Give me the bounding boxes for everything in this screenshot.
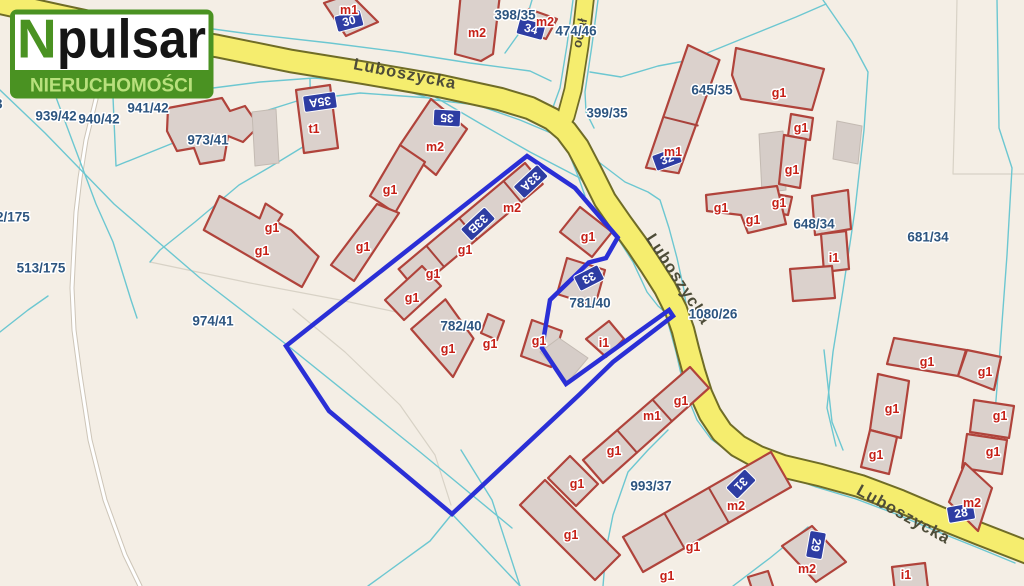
svg-text:g1: g1 <box>405 291 420 305</box>
svg-text:474/46: 474/46 <box>555 24 597 39</box>
svg-text:g1: g1 <box>356 240 371 254</box>
svg-text:g1: g1 <box>869 448 884 462</box>
svg-text:m2: m2 <box>963 496 981 510</box>
svg-text:35: 35 <box>440 111 454 126</box>
svg-text:m2: m2 <box>727 499 745 513</box>
svg-text:g1: g1 <box>564 528 579 542</box>
svg-text:g1: g1 <box>532 334 547 348</box>
svg-text:681/34: 681/34 <box>907 230 949 245</box>
svg-text:m2: m2 <box>536 15 554 29</box>
svg-text:g1: g1 <box>441 342 456 356</box>
svg-text:NIERUCHOMOŚCI: NIERUCHOMOŚCI <box>30 73 193 97</box>
svg-text:g1: g1 <box>660 569 675 583</box>
svg-text:g1: g1 <box>785 163 800 177</box>
svg-text:N: N <box>17 8 57 70</box>
svg-text:g1: g1 <box>426 267 441 281</box>
svg-text:m1: m1 <box>664 145 682 159</box>
svg-text:g1: g1 <box>607 444 622 458</box>
svg-text:i1: i1 <box>599 336 609 350</box>
svg-text:m2: m2 <box>426 140 444 154</box>
svg-text:g1: g1 <box>686 540 701 554</box>
svg-text:941/42: 941/42 <box>127 101 168 116</box>
svg-text:g1: g1 <box>746 213 761 227</box>
svg-text:993/37: 993/37 <box>630 479 671 494</box>
svg-text:782/40: 782/40 <box>440 319 481 334</box>
svg-text:g1: g1 <box>570 477 585 491</box>
svg-text:g1: g1 <box>993 409 1008 423</box>
svg-text:781/40: 781/40 <box>569 296 610 311</box>
svg-text:m2: m2 <box>468 26 486 40</box>
svg-text:g1: g1 <box>255 244 270 258</box>
svg-text:g1: g1 <box>772 86 787 100</box>
svg-text:g1: g1 <box>920 355 935 369</box>
svg-text:398/35: 398/35 <box>494 8 536 23</box>
svg-text:m2: m2 <box>798 562 816 576</box>
svg-text:m1: m1 <box>643 409 661 423</box>
svg-text:t1: t1 <box>308 122 319 136</box>
svg-text:974/41: 974/41 <box>192 314 234 329</box>
svg-text:g1: g1 <box>383 183 398 197</box>
svg-text:g1: g1 <box>483 337 498 351</box>
svg-text:940/42: 940/42 <box>78 112 119 127</box>
svg-text:i1: i1 <box>901 568 911 582</box>
svg-text:g1: g1 <box>978 365 993 379</box>
svg-text:g1: g1 <box>772 196 787 210</box>
svg-text:399/35: 399/35 <box>586 106 628 121</box>
svg-text:g1: g1 <box>581 230 596 244</box>
svg-text:g1: g1 <box>885 402 900 416</box>
svg-text:m2: m2 <box>503 201 521 215</box>
svg-text:i1: i1 <box>829 251 839 265</box>
svg-text:pulsar: pulsar <box>57 8 206 70</box>
svg-text:1080/26: 1080/26 <box>689 307 738 322</box>
svg-text:g1: g1 <box>265 221 280 235</box>
svg-text:648/34: 648/34 <box>793 217 835 232</box>
svg-text:g1: g1 <box>794 121 809 135</box>
svg-text:29: 29 <box>808 537 824 553</box>
svg-text:973/41: 973/41 <box>187 133 229 148</box>
svg-text:513/175: 513/175 <box>17 261 66 276</box>
svg-text:m1: m1 <box>340 3 358 17</box>
svg-text:g1: g1 <box>986 445 1001 459</box>
svg-text:g1: g1 <box>674 394 689 408</box>
svg-text:g1: g1 <box>458 243 473 257</box>
svg-text:645/35: 645/35 <box>691 83 733 98</box>
svg-text:g1: g1 <box>714 201 729 215</box>
svg-text:939/42: 939/42 <box>35 109 76 124</box>
svg-text:2/175: 2/175 <box>0 210 30 225</box>
